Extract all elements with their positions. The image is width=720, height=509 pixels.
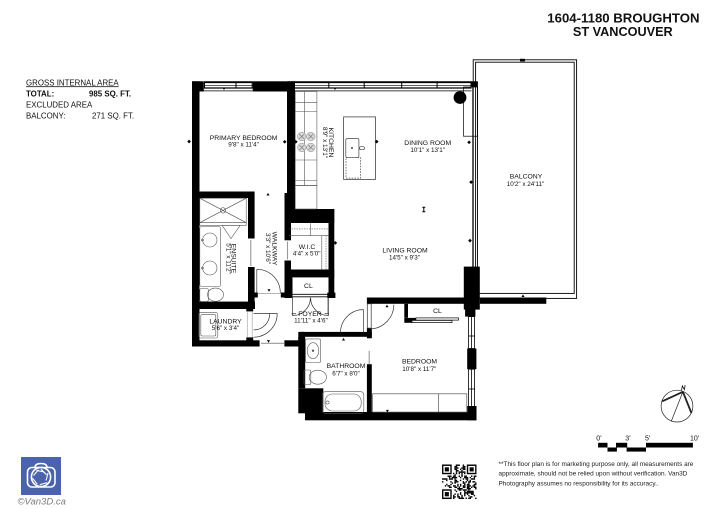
svg-text:CL: CL [433, 308, 442, 315]
svg-text:1604-1180 BROUGHTON: 1604-1180 BROUGHTON [547, 11, 699, 26]
svg-text:BALCONY: BALCONY [510, 173, 543, 180]
svg-text:271 SQ. FT.: 271 SQ. FT. [92, 112, 134, 121]
svg-text:GROSS INTERNAL AREA: GROSS INTERNAL AREA [26, 78, 119, 87]
svg-text:BALCONY:: BALCONY: [26, 112, 65, 121]
svg-text:10': 10' [690, 436, 699, 443]
svg-text:5'6" x 3'4": 5'6" x 3'4" [212, 325, 240, 332]
svg-text:Photography assumes no respons: Photography assumes no responsibility fo… [499, 480, 659, 487]
svg-text:**This floor plan is for marke: **This floor plan is for marketing purpo… [499, 461, 694, 468]
svg-text:10'2" x 24'11": 10'2" x 24'11" [507, 181, 545, 188]
svg-text:14'5" x 9'3": 14'5" x 9'3" [389, 255, 420, 262]
svg-text:BATHROOM: BATHROOM [327, 363, 366, 370]
svg-text:3'3" x 10'6": 3'3" x 10'6" [264, 233, 271, 264]
svg-text:DINING ROOM: DINING ROOM [404, 140, 451, 147]
svg-text:approximate, should not be rel: approximate, should not be relied upon w… [499, 471, 688, 478]
svg-text:9'8" x 11'4": 9'8" x 11'4" [228, 142, 259, 149]
svg-text:10'8" x 11'7": 10'8" x 11'7" [402, 366, 436, 373]
svg-text:EXCLUDED AREA: EXCLUDED AREA [26, 101, 93, 110]
svg-text:5'1" x 11'2": 5'1" x 11'2" [224, 243, 231, 274]
svg-text:ST VANCOUVER: ST VANCOUVER [573, 25, 673, 39]
svg-text:©Van3D.ca: ©Van3D.ca [18, 497, 66, 508]
svg-text:BEDROOM: BEDROOM [402, 359, 437, 366]
svg-text:11'11" x 4'6": 11'11" x 4'6" [294, 318, 328, 325]
svg-text:LIVING ROOM: LIVING ROOM [382, 247, 428, 254]
svg-text:CL: CL [304, 283, 313, 290]
svg-text:10'1" x 13'1": 10'1" x 13'1" [410, 147, 445, 154]
svg-text:6'7" x 8'0": 6'7" x 8'0" [332, 370, 360, 377]
svg-text:5': 5' [645, 436, 650, 443]
svg-text:0': 0' [596, 436, 601, 443]
svg-text:3': 3' [625, 436, 630, 443]
svg-text:4'4" x 5'0": 4'4" x 5'0" [293, 251, 321, 258]
svg-text:TOTAL:: TOTAL: [26, 89, 54, 98]
svg-text:8'9" x 13'1": 8'9" x 13'1" [321, 127, 328, 158]
svg-text:985 SQ. FT.: 985 SQ. FT. [89, 89, 131, 98]
